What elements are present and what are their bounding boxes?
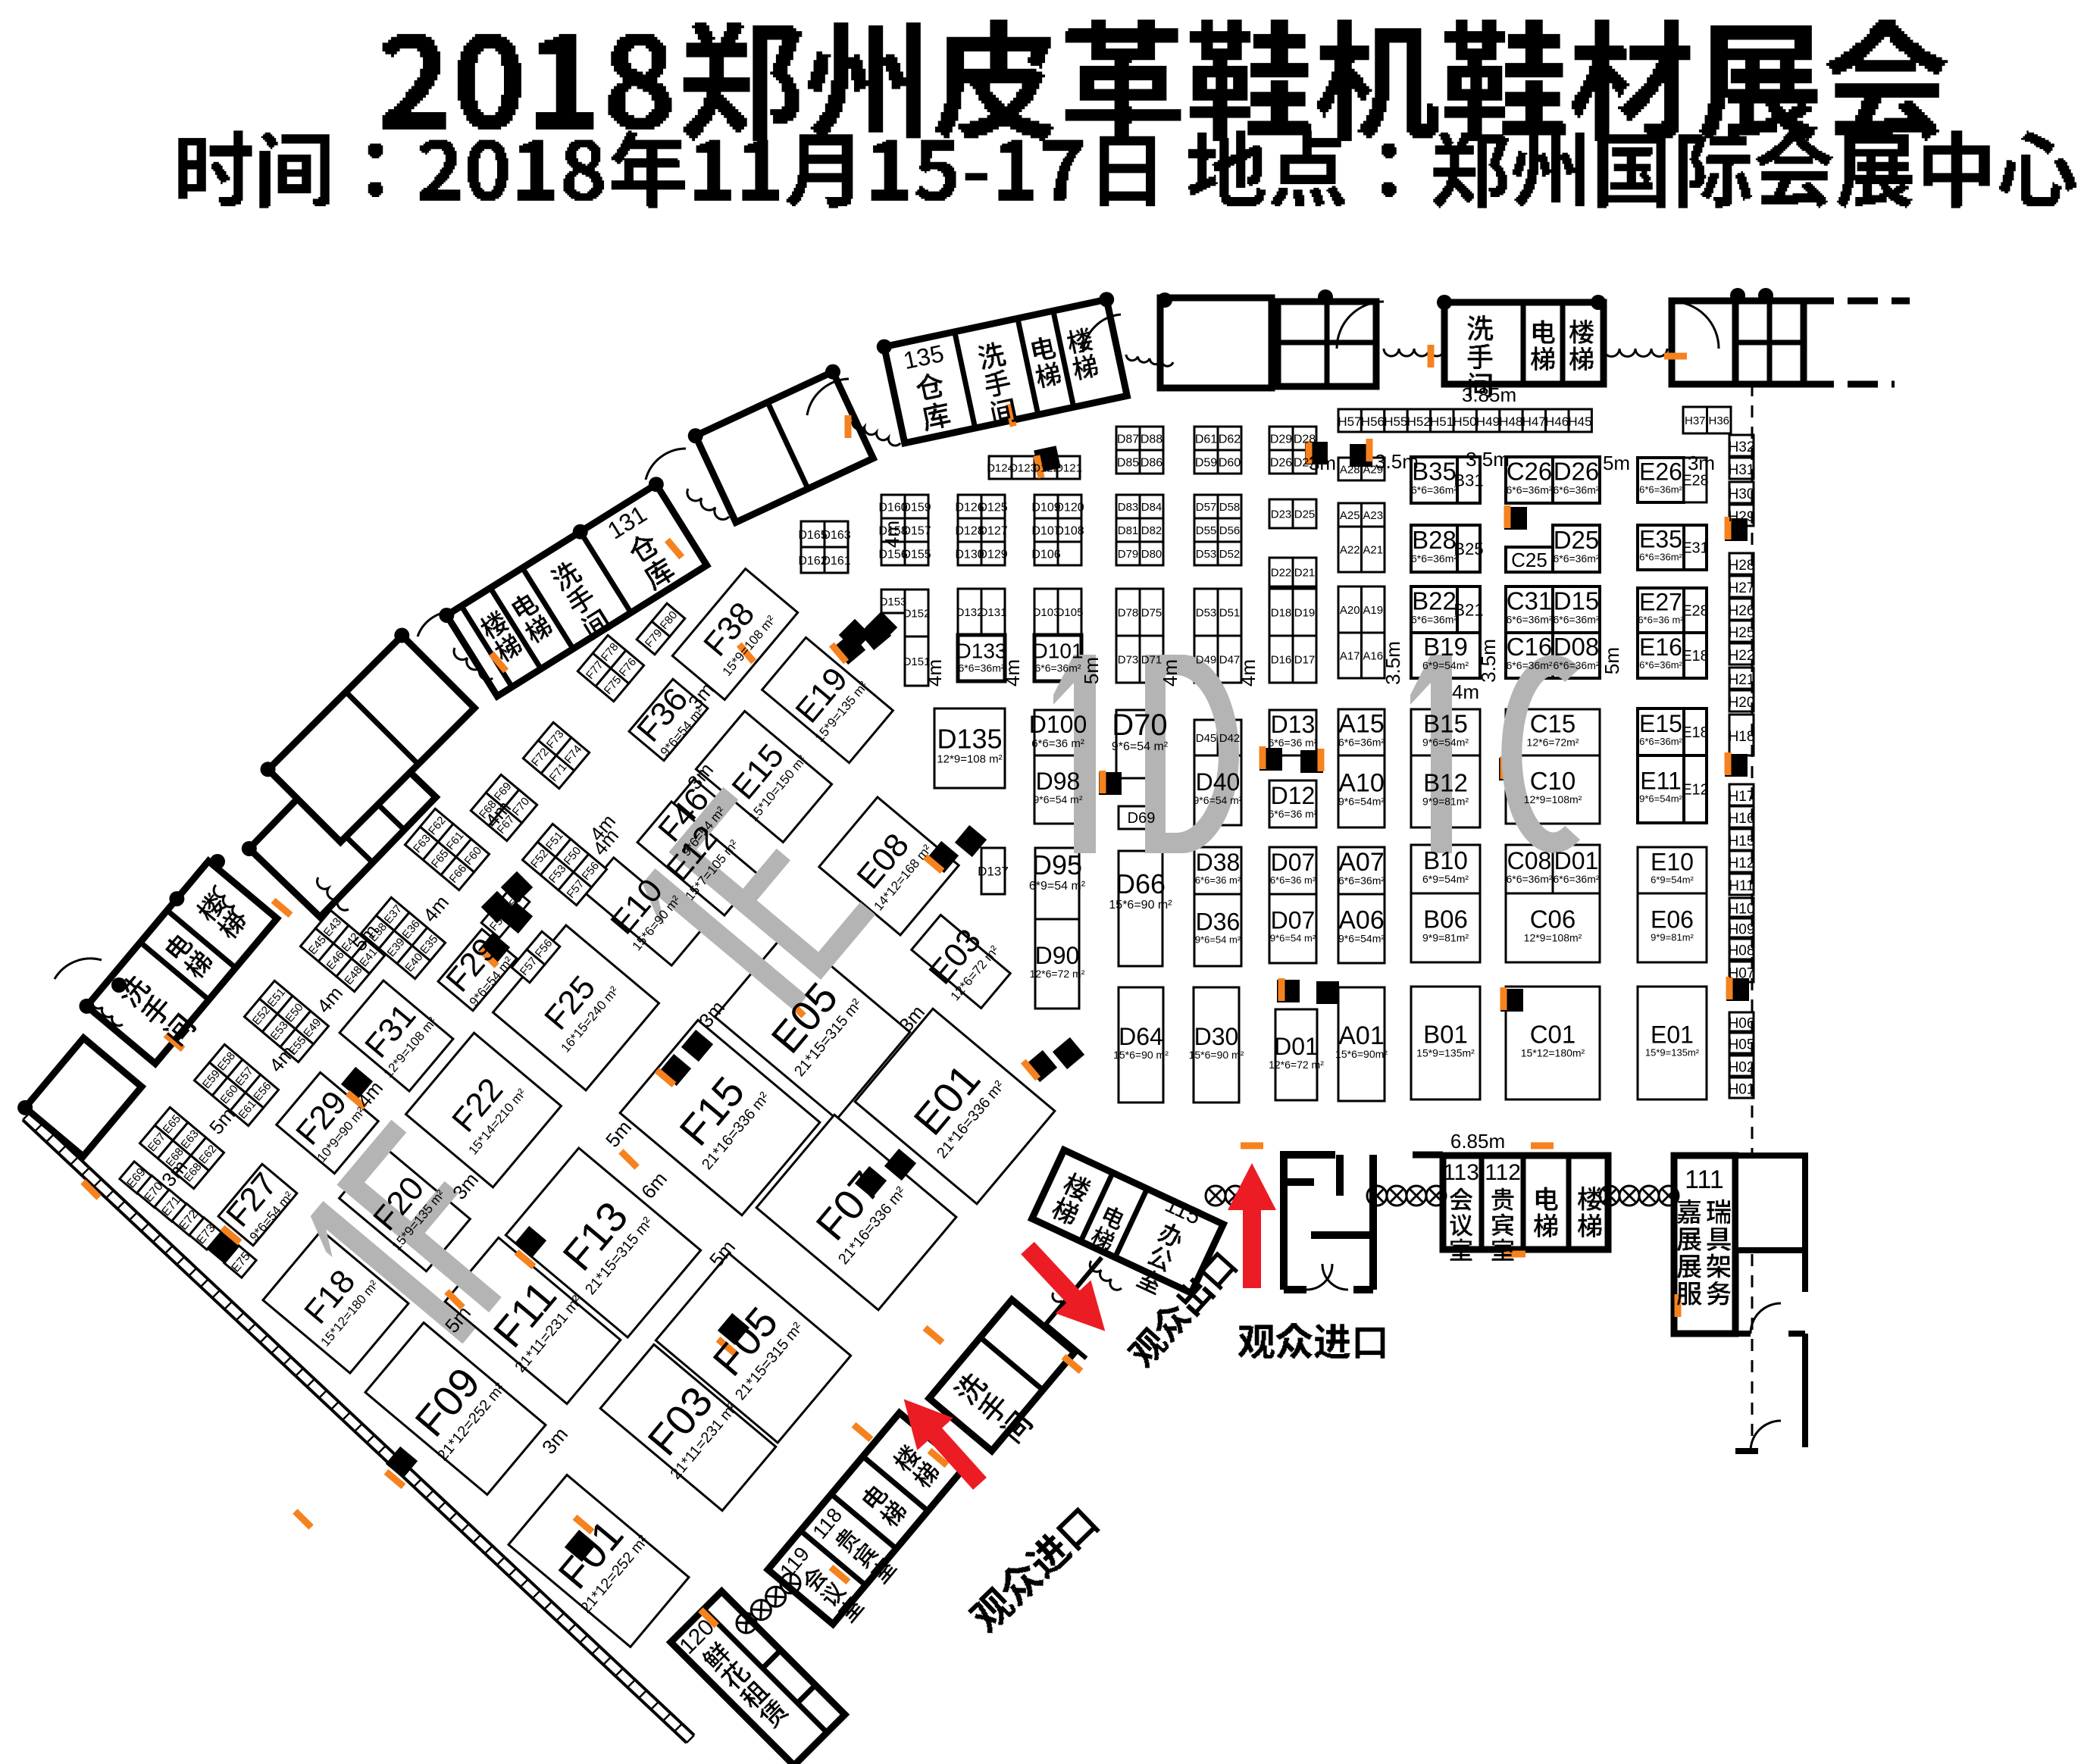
svg-text:D07: D07 — [1271, 907, 1316, 934]
svg-text:4m: 4m — [1001, 659, 1024, 687]
svg-text:6*9=54m²: 6*9=54m² — [1422, 873, 1469, 885]
svg-text:111: 111 — [1685, 1165, 1724, 1194]
svg-text:D49: D49 — [1196, 653, 1217, 666]
svg-text:B35: B35 — [1412, 458, 1457, 486]
svg-text:12*6=72m²: 12*6=72m² — [1527, 737, 1579, 749]
svg-text:6*6=36 m²: 6*6=36 m² — [1269, 737, 1318, 749]
svg-text:6*9=54m²: 6*9=54m² — [1651, 874, 1694, 886]
svg-text:D53: D53 — [1196, 548, 1217, 561]
svg-text:E06: E06 — [1651, 906, 1694, 934]
svg-text:E28: E28 — [1682, 473, 1709, 489]
svg-text:112: 112 — [1485, 1160, 1521, 1185]
svg-text:6*6=36 m²: 6*6=36 m² — [1638, 615, 1684, 626]
svg-text:9*6=54m²: 9*6=54m² — [1639, 793, 1682, 805]
svg-text:H51: H51 — [1430, 414, 1453, 429]
svg-text:H31: H31 — [1729, 462, 1755, 478]
svg-text:E27: E27 — [1639, 589, 1682, 616]
svg-text:H30: H30 — [1729, 486, 1755, 502]
svg-text:H45: H45 — [1568, 414, 1591, 429]
svg-text:6*6=36m²: 6*6=36m² — [1639, 484, 1682, 496]
svg-text:E15: E15 — [1639, 710, 1682, 737]
svg-text:A22: A22 — [1340, 543, 1360, 556]
svg-text:D16: D16 — [1271, 653, 1292, 666]
svg-text:A15: A15 — [1338, 710, 1385, 739]
svg-text:D163: D163 — [821, 529, 850, 542]
svg-text:H50: H50 — [1453, 414, 1476, 429]
svg-text:12*9=108m²: 12*9=108m² — [1524, 932, 1582, 944]
svg-text:D17: D17 — [1294, 653, 1316, 666]
svg-text:H21: H21 — [1729, 672, 1755, 688]
svg-text:H48: H48 — [1499, 414, 1522, 429]
svg-text:6*6=36m²: 6*6=36m² — [1553, 484, 1599, 496]
svg-text:D30: D30 — [1194, 1023, 1239, 1050]
svg-text:D121: D121 — [1055, 461, 1082, 474]
svg-text:D64: D64 — [1119, 1023, 1163, 1050]
svg-text:D26: D26 — [1270, 456, 1292, 469]
svg-text:D26: D26 — [1554, 458, 1600, 486]
svg-text:H06: H06 — [1729, 1016, 1755, 1032]
svg-text:12*6=72 m²: 12*6=72 m² — [1030, 968, 1085, 980]
svg-text:C08: C08 — [1507, 847, 1552, 874]
svg-text:D108: D108 — [1055, 524, 1084, 537]
svg-text:6*6=36m²: 6*6=36m² — [1553, 614, 1599, 626]
svg-text:H27: H27 — [1729, 580, 1755, 596]
svg-text:B21: B21 — [1453, 600, 1483, 619]
svg-text:D81: D81 — [1118, 524, 1139, 537]
svg-text:6*6=36m²: 6*6=36m² — [1338, 737, 1385, 749]
svg-text:H01: H01 — [1729, 1082, 1755, 1098]
svg-text:4m: 4m — [1237, 659, 1259, 687]
svg-text:H25: H25 — [1729, 625, 1755, 641]
svg-text:E18: E18 — [1682, 648, 1709, 665]
svg-text:H56: H56 — [1361, 414, 1385, 429]
svg-text:6*6=36m²: 6*6=36m² — [1411, 614, 1457, 626]
svg-text:E12: E12 — [1682, 782, 1709, 799]
svg-text:B12: B12 — [1423, 769, 1468, 797]
svg-text:H22: H22 — [1729, 648, 1755, 664]
svg-text:H08: H08 — [1729, 943, 1755, 959]
svg-text:D29: D29 — [1270, 433, 1292, 446]
svg-text:D19: D19 — [1294, 606, 1316, 619]
svg-text:9*6=54m²: 9*6=54m² — [1338, 796, 1385, 808]
svg-text:D01: D01 — [1274, 1033, 1319, 1060]
svg-text:15*9=135m²: 15*9=135m² — [1416, 1047, 1475, 1059]
svg-text:D60: D60 — [1219, 456, 1241, 469]
svg-text:6*6=36 m²: 6*6=36 m² — [1270, 874, 1316, 886]
svg-text:H16: H16 — [1729, 811, 1755, 827]
svg-text:D70: D70 — [1112, 708, 1167, 742]
svg-text:H10: H10 — [1729, 902, 1755, 918]
svg-text:B31: B31 — [1453, 471, 1483, 489]
svg-text:C31: C31 — [1507, 587, 1553, 615]
svg-text:A19: A19 — [1363, 604, 1383, 617]
svg-text:D106: D106 — [1031, 548, 1060, 561]
svg-text:D127: D127 — [978, 524, 1007, 537]
svg-text:15*6=90 m²: 15*6=90 m² — [1109, 899, 1172, 912]
svg-text:E16: E16 — [1639, 633, 1682, 661]
svg-text:B15: B15 — [1423, 710, 1468, 738]
svg-text:H37: H37 — [1685, 414, 1706, 427]
svg-text:15*6=90 m²: 15*6=90 m² — [1189, 1049, 1244, 1061]
svg-text:6*6=36m²: 6*6=36m² — [1639, 659, 1682, 671]
svg-text:D82: D82 — [1141, 524, 1162, 537]
svg-text:D22: D22 — [1271, 566, 1292, 579]
svg-text:D38: D38 — [1196, 849, 1241, 876]
svg-text:6*6=36m²: 6*6=36m² — [1639, 736, 1682, 747]
svg-text:D07: D07 — [1271, 849, 1316, 876]
svg-text:4m: 4m — [1159, 659, 1181, 687]
svg-text:3.5m: 3.5m — [1466, 448, 1510, 471]
svg-text:A25: A25 — [1340, 509, 1360, 522]
svg-text:H09: H09 — [1729, 922, 1755, 938]
svg-text:H29: H29 — [1729, 509, 1755, 525]
svg-text:D153: D153 — [880, 596, 907, 608]
svg-text:D23: D23 — [1271, 508, 1292, 521]
svg-text:D25: D25 — [1294, 508, 1316, 521]
svg-text:9*6=54 m²: 9*6=54 m² — [1194, 794, 1243, 806]
svg-text:H07: H07 — [1729, 966, 1755, 982]
svg-text:C01: C01 — [1530, 1021, 1576, 1049]
svg-text:B28: B28 — [1412, 526, 1457, 554]
svg-text:D101: D101 — [1033, 640, 1084, 663]
svg-text:E11: E11 — [1640, 768, 1682, 795]
svg-text:D66: D66 — [1116, 868, 1166, 899]
svg-text:D55: D55 — [1196, 524, 1217, 537]
svg-text:D21: D21 — [1294, 566, 1316, 579]
svg-text:E18: E18 — [1682, 724, 1709, 741]
svg-text:C10: C10 — [1530, 767, 1576, 795]
svg-text:C06: C06 — [1530, 905, 1576, 934]
svg-text:12*9=108 m²: 12*9=108 m² — [937, 753, 1002, 766]
svg-text:D129: D129 — [978, 548, 1007, 561]
svg-text:9*6=54 m²: 9*6=54 m² — [1112, 740, 1169, 753]
svg-text:B25: B25 — [1453, 540, 1483, 558]
svg-text:6*6=36 m²: 6*6=36 m² — [1195, 874, 1241, 886]
svg-text:H17: H17 — [1729, 789, 1755, 805]
svg-text:B22: B22 — [1412, 587, 1457, 615]
svg-text:D45: D45 — [1196, 732, 1217, 745]
svg-text:113: 113 — [1443, 1160, 1479, 1185]
svg-text:A20: A20 — [1340, 604, 1360, 617]
svg-text:6*6=36m²: 6*6=36m² — [1506, 484, 1552, 496]
svg-text:H05: H05 — [1729, 1037, 1755, 1053]
svg-text:D42: D42 — [1219, 732, 1241, 745]
svg-text:D131: D131 — [980, 606, 1007, 619]
svg-text:D155: D155 — [902, 548, 931, 561]
svg-text:D75: D75 — [1141, 606, 1162, 619]
svg-text:H52: H52 — [1407, 414, 1431, 429]
svg-text:6*6=36m²: 6*6=36m² — [1553, 552, 1599, 565]
svg-text:D18: D18 — [1271, 606, 1292, 619]
svg-text:D59: D59 — [1195, 456, 1217, 469]
svg-text:9*6=54 m²: 9*6=54 m² — [1195, 934, 1241, 946]
svg-text:6*6=36m²: 6*6=36m² — [1338, 874, 1385, 887]
svg-text:A01: A01 — [1338, 1021, 1385, 1050]
svg-text:A10: A10 — [1338, 769, 1385, 798]
svg-text:D157: D157 — [902, 524, 931, 537]
svg-text:D62: D62 — [1219, 433, 1241, 446]
svg-text:H32: H32 — [1729, 439, 1755, 455]
svg-text:E28: E28 — [1682, 603, 1709, 620]
svg-text:D28: D28 — [1294, 433, 1316, 446]
svg-text:6*6=36 m²: 6*6=36 m² — [1269, 808, 1318, 820]
svg-text:H55: H55 — [1384, 414, 1407, 429]
svg-text:D08: D08 — [1554, 633, 1600, 661]
svg-text:5m: 5m — [1603, 452, 1630, 474]
svg-text:4m: 4m — [1452, 680, 1479, 703]
svg-text:H49: H49 — [1476, 414, 1500, 429]
svg-text:6*9=54 m²: 6*9=54 m² — [1029, 880, 1086, 893]
svg-text:C16: C16 — [1507, 633, 1553, 661]
svg-text:D86: D86 — [1141, 456, 1162, 469]
svg-text:E35: E35 — [1639, 526, 1682, 553]
svg-text:H26: H26 — [1729, 603, 1755, 619]
svg-text:D78: D78 — [1118, 606, 1139, 619]
svg-text:E10: E10 — [1651, 849, 1694, 876]
svg-text:H36: H36 — [1708, 414, 1729, 427]
svg-text:D58: D58 — [1219, 501, 1241, 514]
svg-text:D53: D53 — [1196, 606, 1217, 619]
svg-text:D125: D125 — [978, 501, 1007, 514]
svg-text:H57: H57 — [1338, 414, 1361, 429]
svg-text:D15: D15 — [1554, 587, 1600, 615]
svg-text:H12: H12 — [1729, 855, 1755, 871]
svg-text:D01: D01 — [1554, 847, 1599, 874]
svg-text:B19: B19 — [1423, 633, 1468, 661]
svg-text:D13: D13 — [1271, 711, 1316, 738]
svg-text:D52: D52 — [1219, 548, 1241, 561]
svg-text:H28: H28 — [1729, 558, 1755, 574]
svg-text:6*6=36m²: 6*6=36m² — [1553, 873, 1599, 885]
svg-text:3.5m: 3.5m — [1477, 639, 1500, 683]
svg-text:6*6=36m²: 6*6=36m² — [958, 662, 1004, 674]
svg-text:6*6=36m²: 6*6=36m² — [1034, 662, 1081, 674]
svg-text:D85: D85 — [1117, 456, 1139, 469]
svg-text:D120: D120 — [1055, 501, 1084, 514]
svg-text:5m: 5m — [1080, 657, 1103, 684]
svg-text:D100: D100 — [1029, 711, 1087, 738]
svg-text:6*6=36m²: 6*6=36m² — [1411, 552, 1457, 565]
svg-text:C26: C26 — [1507, 458, 1553, 486]
svg-text:5m: 5m — [1601, 647, 1623, 674]
svg-text:12*9=108m²: 12*9=108m² — [1524, 793, 1582, 805]
svg-text:D88: D88 — [1141, 433, 1162, 446]
svg-text:B01: B01 — [1423, 1021, 1468, 1049]
svg-text:6*6=36m²: 6*6=36m² — [1506, 614, 1552, 626]
svg-text:3m: 3m — [1688, 452, 1715, 474]
svg-text:H20: H20 — [1729, 695, 1755, 711]
svg-text:D61: D61 — [1195, 433, 1217, 446]
svg-text:12*6=72 m²: 12*6=72 m² — [1269, 1059, 1324, 1071]
svg-text:D56: D56 — [1219, 524, 1241, 537]
svg-text:E31: E31 — [1682, 540, 1709, 557]
svg-text:D84: D84 — [1141, 501, 1162, 514]
svg-text:D137: D137 — [978, 865, 1009, 879]
svg-text:D152: D152 — [903, 607, 931, 620]
svg-text:B06: B06 — [1423, 905, 1468, 934]
svg-text:D95: D95 — [1032, 849, 1082, 880]
svg-text:A07: A07 — [1338, 848, 1385, 877]
svg-text:H47: H47 — [1522, 414, 1546, 429]
svg-text:6*6=36m²: 6*6=36m² — [1506, 873, 1552, 885]
svg-text:D80: D80 — [1141, 548, 1162, 561]
svg-text:6*6=36m²: 6*6=36m² — [1639, 552, 1682, 563]
svg-text:H11: H11 — [1729, 878, 1754, 894]
svg-text:D36: D36 — [1196, 909, 1241, 936]
svg-text:H46: H46 — [1545, 414, 1569, 429]
svg-text:4m: 4m — [923, 659, 946, 687]
svg-text:15*9=135m²: 15*9=135m² — [1645, 1047, 1700, 1059]
svg-text:C25: C25 — [1511, 549, 1547, 571]
svg-text:3m: 3m — [1309, 452, 1336, 474]
svg-text:D12: D12 — [1271, 782, 1316, 809]
svg-text:9*9=81m²: 9*9=81m² — [1651, 932, 1694, 943]
svg-text:9*9=81m²: 9*9=81m² — [1422, 932, 1469, 944]
svg-text:9*6=54 m²: 9*6=54 m² — [1034, 793, 1083, 805]
svg-text:D159: D159 — [902, 501, 931, 514]
svg-text:15*12=180m²: 15*12=180m² — [1521, 1047, 1585, 1059]
svg-text:15*6=90 m²: 15*6=90 m² — [1113, 1049, 1169, 1061]
svg-text:6*9=54m²: 6*9=54m² — [1422, 659, 1469, 671]
svg-text:A23: A23 — [1363, 509, 1383, 522]
svg-text:9*9=81m²: 9*9=81m² — [1422, 796, 1469, 808]
svg-text:D133: D133 — [956, 640, 1007, 663]
svg-text:B10: B10 — [1423, 846, 1468, 874]
svg-text:H15: H15 — [1729, 834, 1755, 849]
svg-text:D51: D51 — [1219, 606, 1241, 619]
svg-text:H02: H02 — [1729, 1060, 1755, 1076]
svg-text:9*6=54 m²: 9*6=54 m² — [1270, 933, 1316, 944]
svg-text:D73: D73 — [1118, 653, 1139, 666]
svg-text:A21: A21 — [1363, 543, 1383, 556]
svg-text:6*6=36m²: 6*6=36m² — [1506, 659, 1552, 671]
svg-text:D87: D87 — [1117, 433, 1139, 446]
svg-text:6*6=36m²: 6*6=36m² — [1411, 484, 1457, 496]
svg-text:D79: D79 — [1118, 548, 1139, 561]
svg-text:6*6=36 m²: 6*6=36 m² — [1031, 737, 1084, 750]
svg-text:E26: E26 — [1639, 458, 1682, 486]
svg-text:A17: A17 — [1340, 649, 1360, 662]
svg-text:D105: D105 — [1056, 606, 1084, 619]
svg-text:E01: E01 — [1651, 1021, 1694, 1049]
svg-text:D40: D40 — [1196, 768, 1241, 796]
svg-text:A28: A28 — [1340, 463, 1360, 476]
svg-text:D98: D98 — [1036, 768, 1081, 795]
svg-text:D90: D90 — [1035, 942, 1080, 969]
svg-text:A16: A16 — [1363, 649, 1383, 662]
svg-text:15*6=90m²: 15*6=90m² — [1335, 1048, 1388, 1060]
svg-text:D69: D69 — [1128, 810, 1156, 827]
svg-text:9*6=54m²: 9*6=54m² — [1422, 737, 1469, 749]
svg-text:3.5m: 3.5m — [1382, 641, 1404, 685]
svg-text:D57: D57 — [1196, 501, 1217, 514]
svg-text:6*6=36m²: 6*6=36m² — [1553, 659, 1599, 671]
svg-text:H18: H18 — [1729, 729, 1755, 745]
svg-text:D161: D161 — [821, 555, 850, 568]
svg-text:3.5m: 3.5m — [1375, 450, 1419, 473]
svg-text:C15: C15 — [1530, 710, 1576, 738]
svg-text:6.85m: 6.85m — [1450, 1130, 1505, 1153]
svg-text:D83: D83 — [1118, 501, 1139, 514]
svg-text:D135: D135 — [937, 724, 1002, 755]
svg-text:9*6=54m²: 9*6=54m² — [1338, 933, 1385, 945]
svg-text:4m: 4m — [881, 521, 903, 548]
svg-text:A06: A06 — [1338, 906, 1385, 935]
svg-text:D25: D25 — [1554, 526, 1600, 554]
